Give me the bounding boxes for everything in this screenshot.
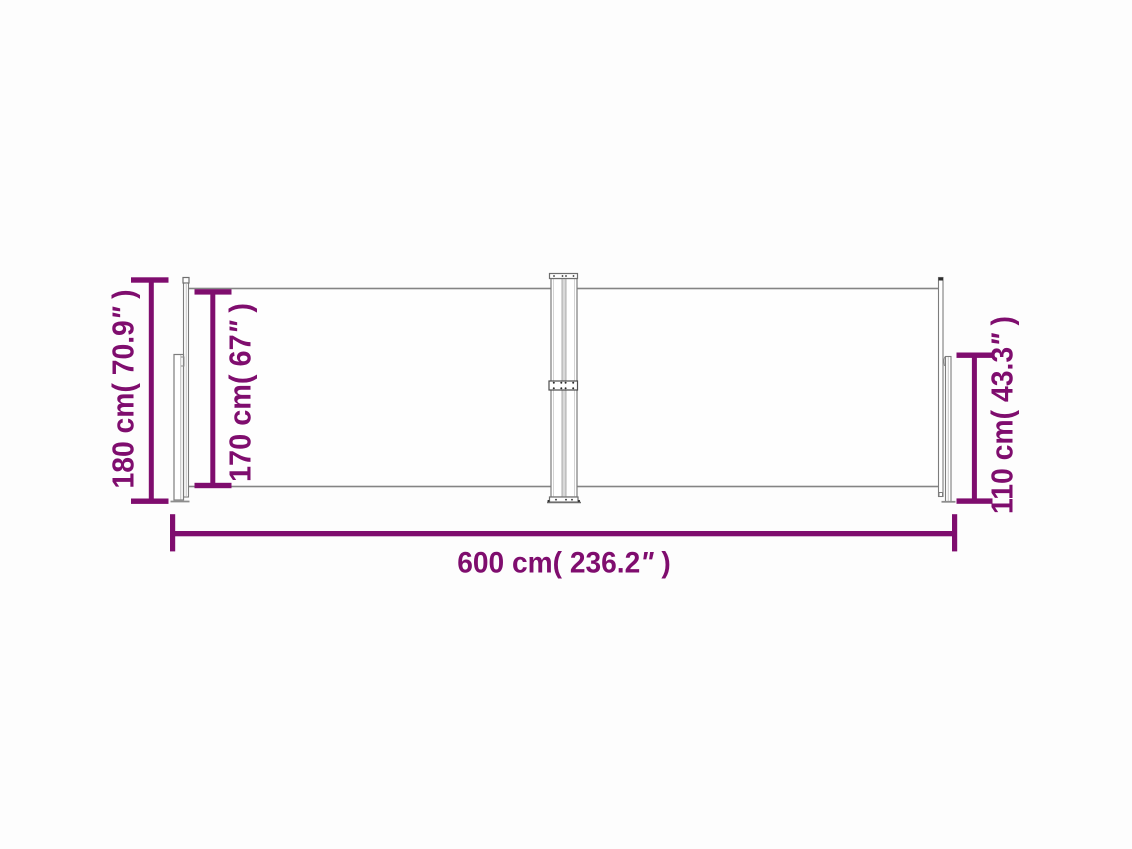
svg-text:110 cm( 43.3" ): 110 cm( 43.3" ) [985,316,1020,514]
svg-text:180 cm( 70.9" ): 180 cm( 70.9" ) [106,290,141,489]
svg-text:600 cm( 236.2" ): 600 cm( 236.2" ) [457,546,671,579]
svg-text:170 cm( 67" ): 170 cm( 67" ) [223,303,258,482]
